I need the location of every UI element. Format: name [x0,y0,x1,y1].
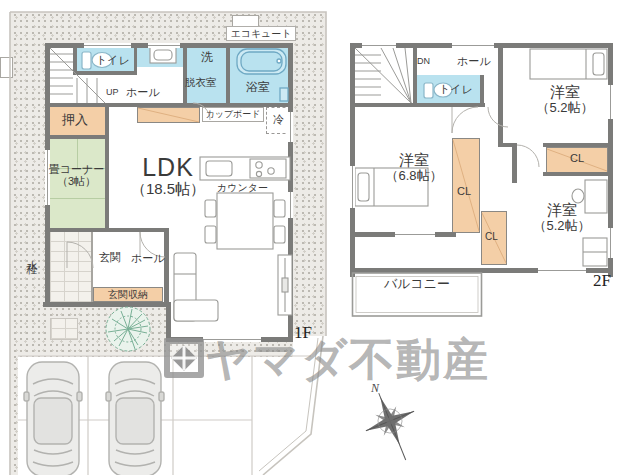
wall [45,43,293,48]
label-cl-mid: CL [457,185,471,197]
label-wash-1: 洗 [201,51,213,64]
neighbor-structure [0,57,13,78]
wall [288,43,293,342]
floorplan-canvas: エコキュート トイレ UP ホール 洗 脱衣室 浴室 押入 カップボード 冷 畳… [0,0,640,475]
label-bath-1f: 浴室 [246,81,270,94]
wall [183,43,187,107]
label-tatami-line2: （3帖） [44,175,109,187]
label-counter-1f: カウンター [217,182,268,193]
label-room-ne-line2: （5.2帖） [520,101,610,116]
label-genkan-storage-1f: 玄関収納 [93,289,163,300]
label-balcony: バルコニー [352,277,482,292]
wall [45,228,169,232]
label-room-w-line2: （6.8帖） [370,169,458,184]
yamada-logo-icon [164,338,204,378]
wall [350,43,613,48]
wall [512,143,517,183]
entrance-step [50,318,78,340]
label-cl-small: CL [485,231,498,242]
wall [350,232,456,237]
wall [608,43,613,277]
label-tatami-corner: 畳コーナー （3帖） [44,163,109,188]
wall [543,172,608,176]
wall [43,302,171,307]
label-up: UP [106,87,119,97]
label-oshiire-1f: 押入 [62,113,88,128]
label-room-w: 洋室 （6.8帖） [370,152,458,183]
yamada-logo-cut [172,357,196,360]
label-wash-2: 脱衣室 [185,77,217,89]
label-room-se-line1: 洋室 [518,202,606,219]
wall [45,103,293,107]
sideboard-1f [137,107,200,123]
label-hall-lower-1f: ホール [131,252,165,264]
wall [73,71,137,75]
label-fridge-1f: 冷 [266,113,291,125]
tatami-seam [50,198,105,199]
watermark-brand-text: ヤマダ不動産 [205,330,490,390]
wall [134,43,137,71]
entrance-porch-1f [50,232,93,302]
label-room-se-line2: （5.2帖） [518,219,606,234]
wall [480,75,484,107]
label-ldk-line2: （18.5帖） [108,181,228,198]
label-cl-right: CL [546,152,608,164]
label-room-w-line1: 洋室 [370,152,458,169]
wall [350,43,355,277]
car-icon [24,362,82,475]
label-room-ne-line1: 洋室 [520,84,610,101]
label-toilet-2f: トイレ [439,83,473,95]
label-ldk-line1: LDK [108,153,228,181]
label-room-ne: 洋室 （5.2帖） [520,84,610,115]
wall [226,43,230,107]
compass-icon [355,383,430,469]
label-ecocute: エコキュート [226,26,296,41]
label-floor2: 2F [593,271,611,290]
label-toilet-1f: トイレ [96,54,130,66]
car-icon [106,362,164,475]
label-dn: DN [417,56,430,66]
wall [45,135,109,139]
label-room-se: 洋室 （5.2帖） [518,202,606,233]
washstand-nook-1f [137,47,183,67]
wall [164,228,169,307]
label-tatami-line1: 畳コーナー [44,163,109,175]
room-bath-1f [230,47,288,104]
wall [498,43,503,147]
label-water-tap: 水栓 [26,252,38,258]
label-hall-2f: ホール [457,55,491,67]
label-genkan-1f: 玄関 [99,251,121,263]
label-hall-upper-1f: ホール [126,86,160,98]
wall [166,302,171,342]
label-cupboard-1f: カップボード [202,109,264,119]
label-ldk: LDK （18.5帖） [108,153,228,198]
wall [350,103,485,107]
wall [543,143,608,147]
wall [350,268,613,273]
